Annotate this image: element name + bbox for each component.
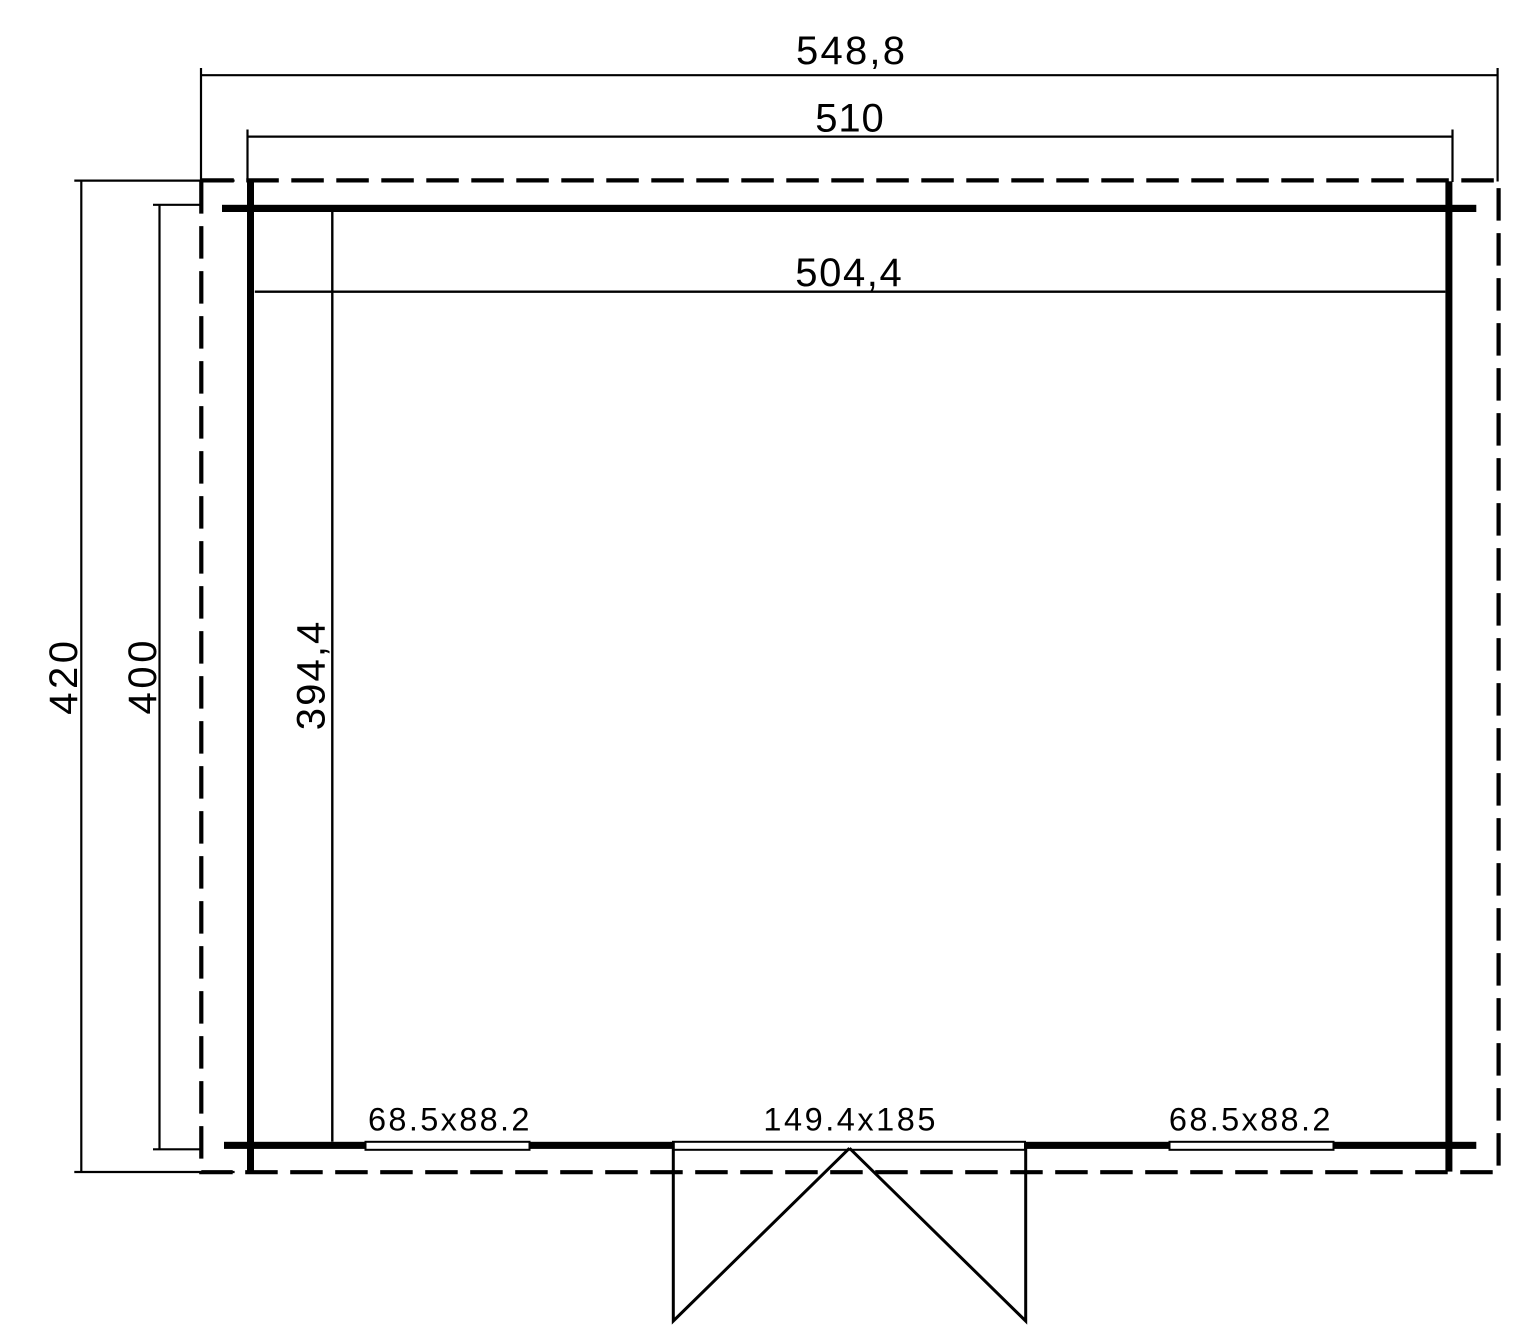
svg-text:548,8: 548,8 bbox=[796, 29, 905, 73]
svg-text:400: 400 bbox=[121, 641, 165, 715]
svg-text:394,4: 394,4 bbox=[290, 622, 334, 731]
svg-text:510: 510 bbox=[815, 97, 884, 141]
svg-text:420: 420 bbox=[42, 641, 86, 715]
svg-text:68.5x88.2: 68.5x88.2 bbox=[368, 1102, 530, 1138]
svg-text:68.5x88.2: 68.5x88.2 bbox=[1169, 1102, 1331, 1138]
svg-text:149.4x185: 149.4x185 bbox=[763, 1101, 935, 1137]
svg-text:504,4: 504,4 bbox=[795, 251, 902, 295]
